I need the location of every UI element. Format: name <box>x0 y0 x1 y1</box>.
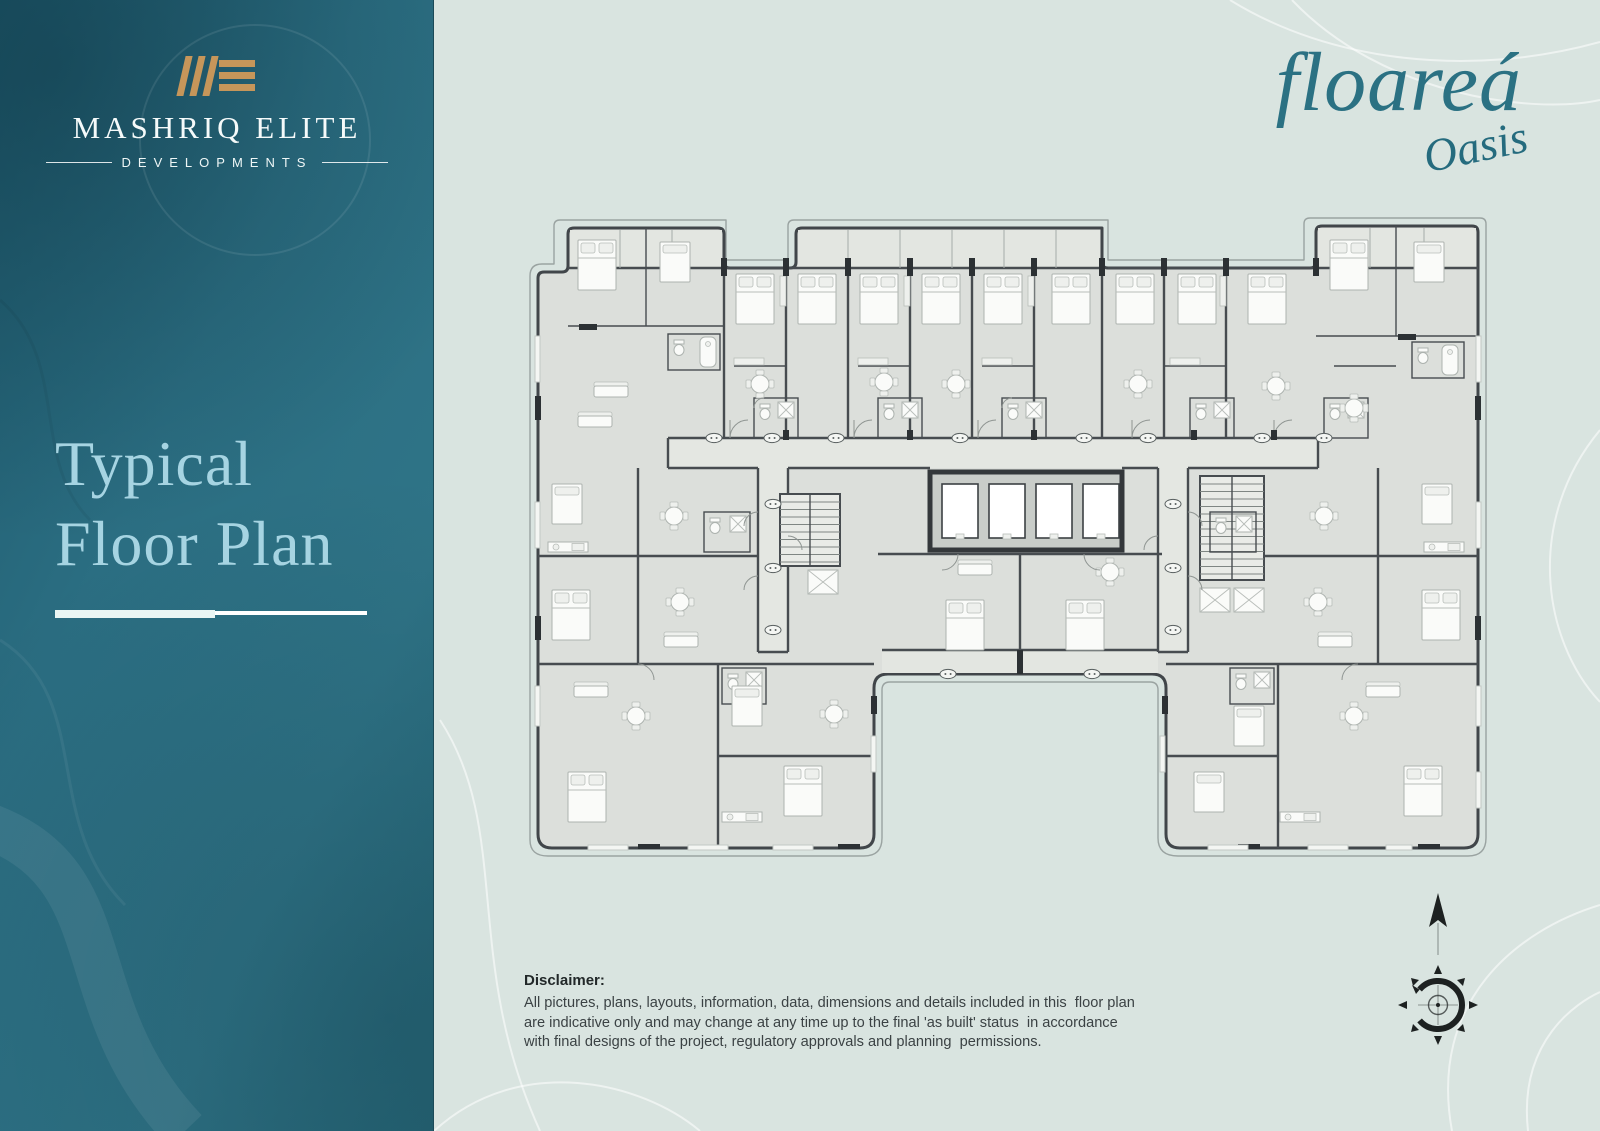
compass-rose-icon <box>1388 885 1488 1065</box>
developer-name: MASHRIQ ELITE <box>40 110 394 146</box>
underline-thick-segment <box>55 610 215 618</box>
disclaimer-body: All pictures, plans, layouts, informatio… <box>524 994 1184 1053</box>
page-title: TypicalFloor Plan <box>55 424 333 584</box>
stairwell-left <box>780 494 840 566</box>
north-arrow-icon <box>1429 893 1447 955</box>
mashriq-elite-monogram-icon <box>171 54 263 100</box>
page-title-line1: Typical <box>55 428 253 499</box>
developer-tagline: DEVELOPMENTS <box>122 155 313 170</box>
compass-dial <box>1398 965 1478 1045</box>
project-logo: floareá Oasis <box>1220 34 1550 184</box>
disclaimer-block: Disclaimer: All pictures, plans, layouts… <box>524 972 1184 1053</box>
tagline-rule-left <box>46 162 112 163</box>
underline-thin-segment <box>215 611 367 615</box>
elevator-core <box>930 472 1122 550</box>
floor-plan-drawing <box>518 216 1498 862</box>
title-underline <box>55 610 367 618</box>
disclaimer-heading: Disclaimer: <box>524 972 1184 989</box>
developer-logo: MASHRIQ ELITE DEVELOPMENTS <box>40 54 394 170</box>
developer-tagline-row: DEVELOPMENTS <box>40 155 394 170</box>
sidebar: MASHRIQ ELITE DEVELOPMENTS TypicalFloor … <box>0 0 434 1131</box>
tagline-rule-right <box>322 162 388 163</box>
page-title-line2: Floor Plan <box>55 508 333 579</box>
brochure-page: MASHRIQ ELITE DEVELOPMENTS TypicalFloor … <box>0 0 1600 1131</box>
